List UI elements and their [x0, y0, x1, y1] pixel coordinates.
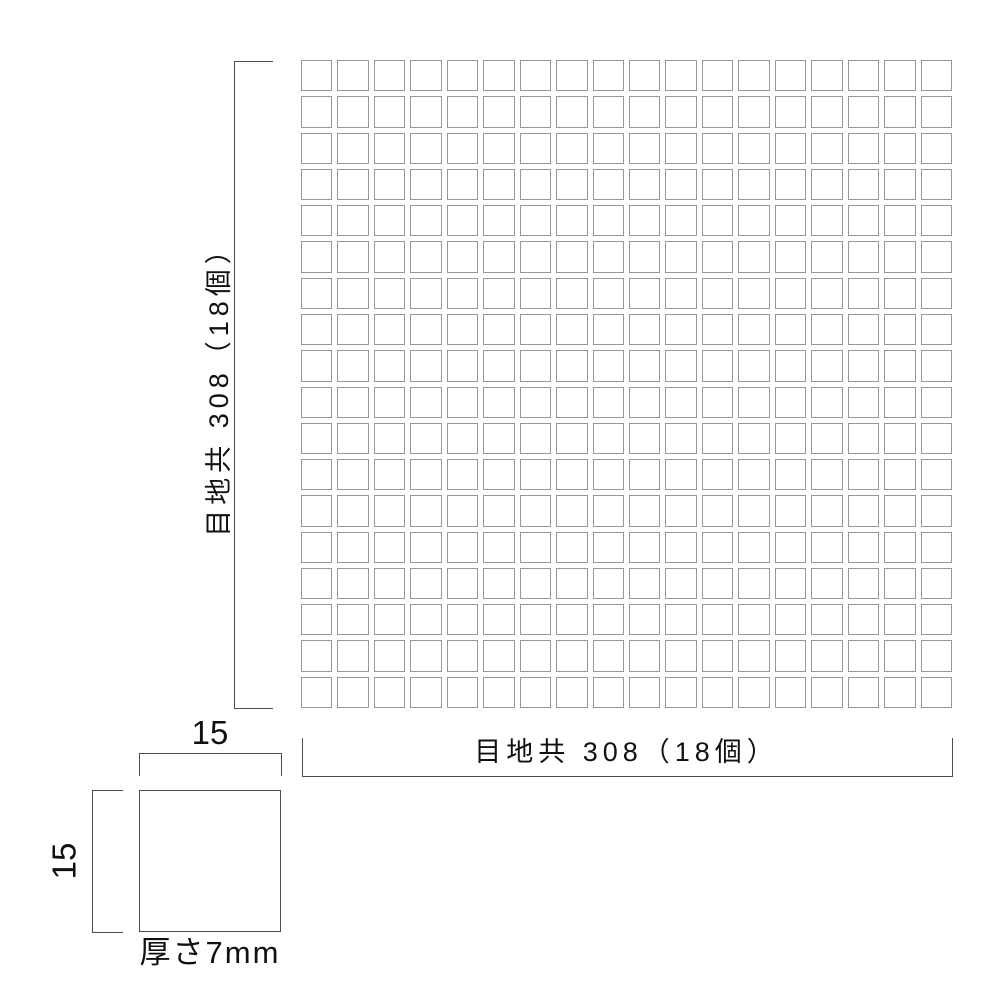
mosaic-tile — [410, 387, 441, 418]
mosaic-tile — [374, 568, 405, 599]
mosaic-tile — [629, 459, 660, 490]
mosaic-tile — [301, 532, 332, 563]
mosaic-tile — [593, 677, 624, 708]
mosaic-tile — [811, 568, 842, 599]
mosaic-tile — [374, 532, 405, 563]
mosaic-tile — [921, 169, 952, 200]
mosaic-tile — [848, 350, 879, 381]
mosaic-tile — [520, 495, 551, 526]
mosaic-tile — [921, 278, 952, 309]
mosaic-tile — [884, 604, 915, 635]
mosaic-tile — [811, 423, 842, 454]
mosaic-tile — [337, 350, 368, 381]
mosaic-tile — [556, 133, 587, 164]
mosaic-tile — [921, 532, 952, 563]
mosaic-tile — [665, 677, 696, 708]
mosaic-tile — [738, 133, 769, 164]
mosaic-tile — [520, 96, 551, 127]
chip-height-label: 15 — [45, 842, 83, 879]
mosaic-tile — [593, 387, 624, 418]
mosaic-tile — [556, 241, 587, 272]
mosaic-tile — [593, 60, 624, 91]
mosaic-tile — [775, 205, 806, 236]
mosaic-tile — [702, 350, 733, 381]
mosaic-tile — [921, 677, 952, 708]
mosaic-tile — [629, 278, 660, 309]
mosaic-tile — [520, 532, 551, 563]
mosaic-tile — [629, 96, 660, 127]
mosaic-tile — [483, 532, 514, 563]
mosaic-tile — [884, 495, 915, 526]
mosaic-tile — [665, 387, 696, 418]
mosaic-tile — [374, 640, 405, 671]
mosaic-tile — [738, 532, 769, 563]
mosaic-tile — [410, 205, 441, 236]
mosaic-tile — [410, 677, 441, 708]
mosaic-tile — [593, 495, 624, 526]
mosaic-tile — [775, 314, 806, 345]
mosaic-tile — [593, 604, 624, 635]
mosaic-tile — [556, 532, 587, 563]
mosaic-tile — [629, 604, 660, 635]
mosaic-tile — [520, 60, 551, 91]
mosaic-tile — [629, 387, 660, 418]
mosaic-tile — [520, 169, 551, 200]
mosaic-tile — [520, 604, 551, 635]
mosaic-tile — [811, 604, 842, 635]
mosaic-tile — [811, 677, 842, 708]
mosaic-tile — [374, 677, 405, 708]
mosaic-tile — [301, 423, 332, 454]
mosaic-tile — [593, 568, 624, 599]
mosaic-tile — [410, 241, 441, 272]
mosaic-tile — [921, 568, 952, 599]
mosaic-tile — [848, 241, 879, 272]
mosaic-tile — [775, 640, 806, 671]
mosaic-tile — [921, 205, 952, 236]
mosaic-tile — [665, 314, 696, 345]
mosaic-tile — [301, 133, 332, 164]
mosaic-tile — [483, 96, 514, 127]
mosaic-tile — [884, 169, 915, 200]
mosaic-tile — [410, 423, 441, 454]
mosaic-tile — [921, 133, 952, 164]
mosaic-tile — [702, 677, 733, 708]
mosaic-tile — [884, 677, 915, 708]
mosaic-tile — [374, 459, 405, 490]
mosaic-tile — [593, 532, 624, 563]
mosaic-tile-grid — [301, 60, 952, 708]
mosaic-tile — [520, 423, 551, 454]
mosaic-tile — [702, 387, 733, 418]
mosaic-tile — [301, 314, 332, 345]
mosaic-tile — [337, 60, 368, 91]
mosaic-tile — [848, 205, 879, 236]
mosaic-tile — [702, 532, 733, 563]
mosaic-tile — [629, 205, 660, 236]
mosaic-tile — [629, 423, 660, 454]
mosaic-tile — [775, 96, 806, 127]
mosaic-tile — [483, 350, 514, 381]
mosaic-tile — [410, 314, 441, 345]
mosaic-tile — [921, 350, 952, 381]
mosaic-tile — [738, 568, 769, 599]
chip-height-dimension-line — [92, 790, 123, 933]
tile-chip-detail — [139, 790, 281, 932]
mosaic-tile — [665, 495, 696, 526]
mosaic-tile — [374, 495, 405, 526]
mosaic-tile — [665, 532, 696, 563]
mosaic-tile — [848, 169, 879, 200]
mosaic-tile — [483, 640, 514, 671]
mosaic-tile — [884, 133, 915, 164]
mosaic-tile — [702, 640, 733, 671]
mosaic-tile — [884, 423, 915, 454]
mosaic-tile — [884, 60, 915, 91]
mosaic-tile — [556, 278, 587, 309]
mosaic-tile — [337, 640, 368, 671]
mosaic-tile — [374, 169, 405, 200]
mosaic-tile — [301, 568, 332, 599]
mosaic-tile — [775, 423, 806, 454]
mosaic-tile — [665, 205, 696, 236]
mosaic-tile — [301, 459, 332, 490]
mosaic-tile — [775, 677, 806, 708]
mosaic-tile — [884, 314, 915, 345]
mosaic-tile — [738, 96, 769, 127]
mosaic-tile — [811, 278, 842, 309]
mosaic-tile — [337, 241, 368, 272]
mosaic-tile — [738, 205, 769, 236]
mosaic-tile — [520, 133, 551, 164]
mosaic-tile — [520, 640, 551, 671]
mosaic-tile — [811, 495, 842, 526]
mosaic-tile — [483, 568, 514, 599]
mosaic-tile — [520, 387, 551, 418]
mosaic-tile — [775, 60, 806, 91]
mosaic-tile — [702, 495, 733, 526]
mosaic-tile — [301, 604, 332, 635]
mosaic-tile — [629, 133, 660, 164]
mosaic-tile — [848, 96, 879, 127]
mosaic-tile — [374, 133, 405, 164]
mosaic-tile — [921, 459, 952, 490]
mosaic-tile — [374, 387, 405, 418]
mosaic-tile — [520, 205, 551, 236]
mosaic-tile — [410, 278, 441, 309]
mosaic-tile — [665, 133, 696, 164]
mosaic-tile — [738, 495, 769, 526]
mosaic-tile — [483, 495, 514, 526]
mosaic-tile — [301, 96, 332, 127]
mosaic-tile — [483, 604, 514, 635]
mosaic-tile — [702, 314, 733, 345]
mosaic-tile — [702, 60, 733, 91]
mosaic-tile — [556, 677, 587, 708]
mosaic-tile — [702, 278, 733, 309]
mosaic-tile — [593, 350, 624, 381]
mosaic-tile — [738, 387, 769, 418]
mosaic-tile — [665, 241, 696, 272]
mosaic-tile — [410, 568, 441, 599]
mosaic-tile — [738, 677, 769, 708]
mosaic-tile — [337, 205, 368, 236]
mosaic-tile — [374, 314, 405, 345]
mosaic-tile — [556, 423, 587, 454]
mosaic-tile — [410, 640, 441, 671]
mosaic-tile — [848, 640, 879, 671]
mosaic-tile — [593, 640, 624, 671]
mosaic-tile — [410, 604, 441, 635]
mosaic-tile — [848, 60, 879, 91]
mosaic-tile — [811, 532, 842, 563]
mosaic-tile — [447, 568, 478, 599]
mosaic-tile — [301, 278, 332, 309]
mosaic-tile — [410, 96, 441, 127]
mosaic-tile — [483, 169, 514, 200]
mosaic-tile — [665, 350, 696, 381]
mosaic-tile — [629, 568, 660, 599]
mosaic-tile — [884, 350, 915, 381]
mosaic-tile — [665, 96, 696, 127]
mosaic-tile — [593, 423, 624, 454]
mosaic-tile — [301, 60, 332, 91]
mosaic-tile — [337, 278, 368, 309]
mosaic-tile — [702, 133, 733, 164]
mosaic-tile — [447, 495, 478, 526]
chip-width-dimension-line — [139, 753, 282, 776]
mosaic-tile — [775, 350, 806, 381]
mosaic-tile — [921, 423, 952, 454]
mosaic-tile — [374, 278, 405, 309]
mosaic-tile — [665, 60, 696, 91]
mosaic-tile — [848, 387, 879, 418]
mosaic-tile — [811, 350, 842, 381]
mosaic-tile — [483, 278, 514, 309]
sheet-width-label: 目地共 308（18個） — [302, 735, 951, 769]
mosaic-tile — [921, 60, 952, 91]
mosaic-tile — [775, 387, 806, 418]
mosaic-tile — [775, 459, 806, 490]
mosaic-tile — [811, 640, 842, 671]
mosaic-tile — [811, 314, 842, 345]
mosaic-tile — [447, 241, 478, 272]
mosaic-tile — [447, 278, 478, 309]
mosaic-tile — [556, 495, 587, 526]
mosaic-tile — [447, 532, 478, 563]
chip-height-dimension: 15 — [44, 790, 84, 931]
mosaic-tile — [775, 169, 806, 200]
mosaic-tile — [556, 604, 587, 635]
mosaic-tile — [884, 387, 915, 418]
mosaic-tile — [629, 350, 660, 381]
mosaic-tile — [593, 314, 624, 345]
mosaic-tile — [848, 532, 879, 563]
mosaic-tile — [884, 640, 915, 671]
mosaic-tile — [665, 423, 696, 454]
mosaic-tile — [702, 423, 733, 454]
mosaic-tile — [483, 133, 514, 164]
mosaic-tile — [447, 677, 478, 708]
mosaic-tile — [665, 459, 696, 490]
chip-thickness-label: 厚さ7mm — [130, 934, 290, 972]
mosaic-tile — [738, 459, 769, 490]
mosaic-tile — [410, 169, 441, 200]
mosaic-tile — [556, 350, 587, 381]
mosaic-tile — [337, 568, 368, 599]
mosaic-tile — [410, 60, 441, 91]
mosaic-tile — [483, 677, 514, 708]
mosaic-tile — [775, 604, 806, 635]
mosaic-tile — [884, 532, 915, 563]
mosaic-tile — [775, 532, 806, 563]
tile-spec-drawing: 目地共 308（18個） 目地共 308（18個） 15 15 厚さ7mm — [0, 0, 1000, 1000]
mosaic-tile — [921, 640, 952, 671]
mosaic-tile — [301, 387, 332, 418]
mosaic-tile — [337, 677, 368, 708]
mosaic-tile — [738, 640, 769, 671]
mosaic-tile — [301, 640, 332, 671]
mosaic-tile — [702, 568, 733, 599]
mosaic-tile — [775, 495, 806, 526]
mosaic-tile — [848, 133, 879, 164]
mosaic-tile — [593, 169, 624, 200]
mosaic-tile — [921, 241, 952, 272]
mosaic-tile — [629, 532, 660, 563]
mosaic-tile — [374, 205, 405, 236]
mosaic-tile — [738, 60, 769, 91]
mosaic-tile — [483, 459, 514, 490]
mosaic-tile — [593, 459, 624, 490]
mosaic-tile — [593, 96, 624, 127]
mosaic-tile — [629, 677, 660, 708]
mosaic-tile — [374, 423, 405, 454]
mosaic-tile — [374, 241, 405, 272]
mosaic-tile — [811, 169, 842, 200]
mosaic-tile — [301, 205, 332, 236]
mosaic-tile — [447, 133, 478, 164]
mosaic-tile — [447, 423, 478, 454]
mosaic-tile — [447, 169, 478, 200]
mosaic-tile — [738, 604, 769, 635]
mosaic-tile — [556, 387, 587, 418]
mosaic-tile — [629, 314, 660, 345]
mosaic-tile — [556, 314, 587, 345]
mosaic-tile — [848, 677, 879, 708]
mosaic-tile — [337, 133, 368, 164]
mosaic-tile — [410, 133, 441, 164]
mosaic-tile — [884, 278, 915, 309]
mosaic-tile — [921, 314, 952, 345]
mosaic-tile — [738, 350, 769, 381]
mosaic-tile — [447, 459, 478, 490]
mosaic-tile — [556, 640, 587, 671]
mosaic-tile — [811, 205, 842, 236]
mosaic-tile — [811, 96, 842, 127]
mosaic-tile — [811, 387, 842, 418]
mosaic-tile — [447, 640, 478, 671]
mosaic-tile — [702, 205, 733, 236]
mosaic-tile — [410, 459, 441, 490]
mosaic-tile — [410, 495, 441, 526]
mosaic-tile — [556, 60, 587, 91]
mosaic-tile — [337, 495, 368, 526]
mosaic-tile — [301, 169, 332, 200]
mosaic-tile — [921, 604, 952, 635]
mosaic-tile — [921, 96, 952, 127]
mosaic-tile — [556, 568, 587, 599]
mosaic-tile — [775, 278, 806, 309]
mosaic-tile — [738, 169, 769, 200]
mosaic-tile — [884, 205, 915, 236]
mosaic-tile — [702, 604, 733, 635]
mosaic-tile — [848, 495, 879, 526]
mosaic-tile — [629, 241, 660, 272]
mosaic-tile — [556, 205, 587, 236]
mosaic-tile — [374, 96, 405, 127]
mosaic-tile — [520, 278, 551, 309]
mosaic-tile — [447, 60, 478, 91]
chip-width-label: 15 — [139, 714, 281, 752]
mosaic-tile — [483, 241, 514, 272]
mosaic-tile — [593, 133, 624, 164]
mosaic-tile — [337, 532, 368, 563]
mosaic-tile — [447, 96, 478, 127]
mosaic-tile — [447, 387, 478, 418]
mosaic-tile — [483, 423, 514, 454]
mosaic-tile — [738, 423, 769, 454]
mosaic-tile — [884, 96, 915, 127]
mosaic-tile — [337, 387, 368, 418]
mosaic-tile — [629, 60, 660, 91]
mosaic-tile — [337, 169, 368, 200]
mosaic-tile — [337, 423, 368, 454]
mosaic-tile — [374, 60, 405, 91]
mosaic-tile — [301, 677, 332, 708]
mosaic-tile — [848, 459, 879, 490]
mosaic-tile — [629, 640, 660, 671]
mosaic-tile — [520, 568, 551, 599]
mosaic-tile — [848, 604, 879, 635]
mosaic-tile — [775, 568, 806, 599]
mosaic-tile — [483, 387, 514, 418]
mosaic-tile — [520, 350, 551, 381]
mosaic-tile — [702, 169, 733, 200]
mosaic-tile — [665, 169, 696, 200]
mosaic-tile — [884, 459, 915, 490]
mosaic-tile — [921, 495, 952, 526]
mosaic-tile — [520, 241, 551, 272]
mosaic-tile — [447, 205, 478, 236]
mosaic-tile — [301, 350, 332, 381]
mosaic-tile — [848, 278, 879, 309]
mosaic-tile — [520, 677, 551, 708]
mosaic-tile — [483, 60, 514, 91]
mosaic-tile — [811, 241, 842, 272]
mosaic-tile — [483, 314, 514, 345]
mosaic-tile — [738, 314, 769, 345]
mosaic-tile — [410, 350, 441, 381]
mosaic-tile — [301, 241, 332, 272]
mosaic-tile — [702, 96, 733, 127]
mosaic-tile — [337, 604, 368, 635]
mosaic-tile — [665, 604, 696, 635]
mosaic-tile — [848, 568, 879, 599]
mosaic-tile — [811, 60, 842, 91]
mosaic-tile — [665, 640, 696, 671]
mosaic-tile — [337, 96, 368, 127]
mosaic-tile — [811, 459, 842, 490]
